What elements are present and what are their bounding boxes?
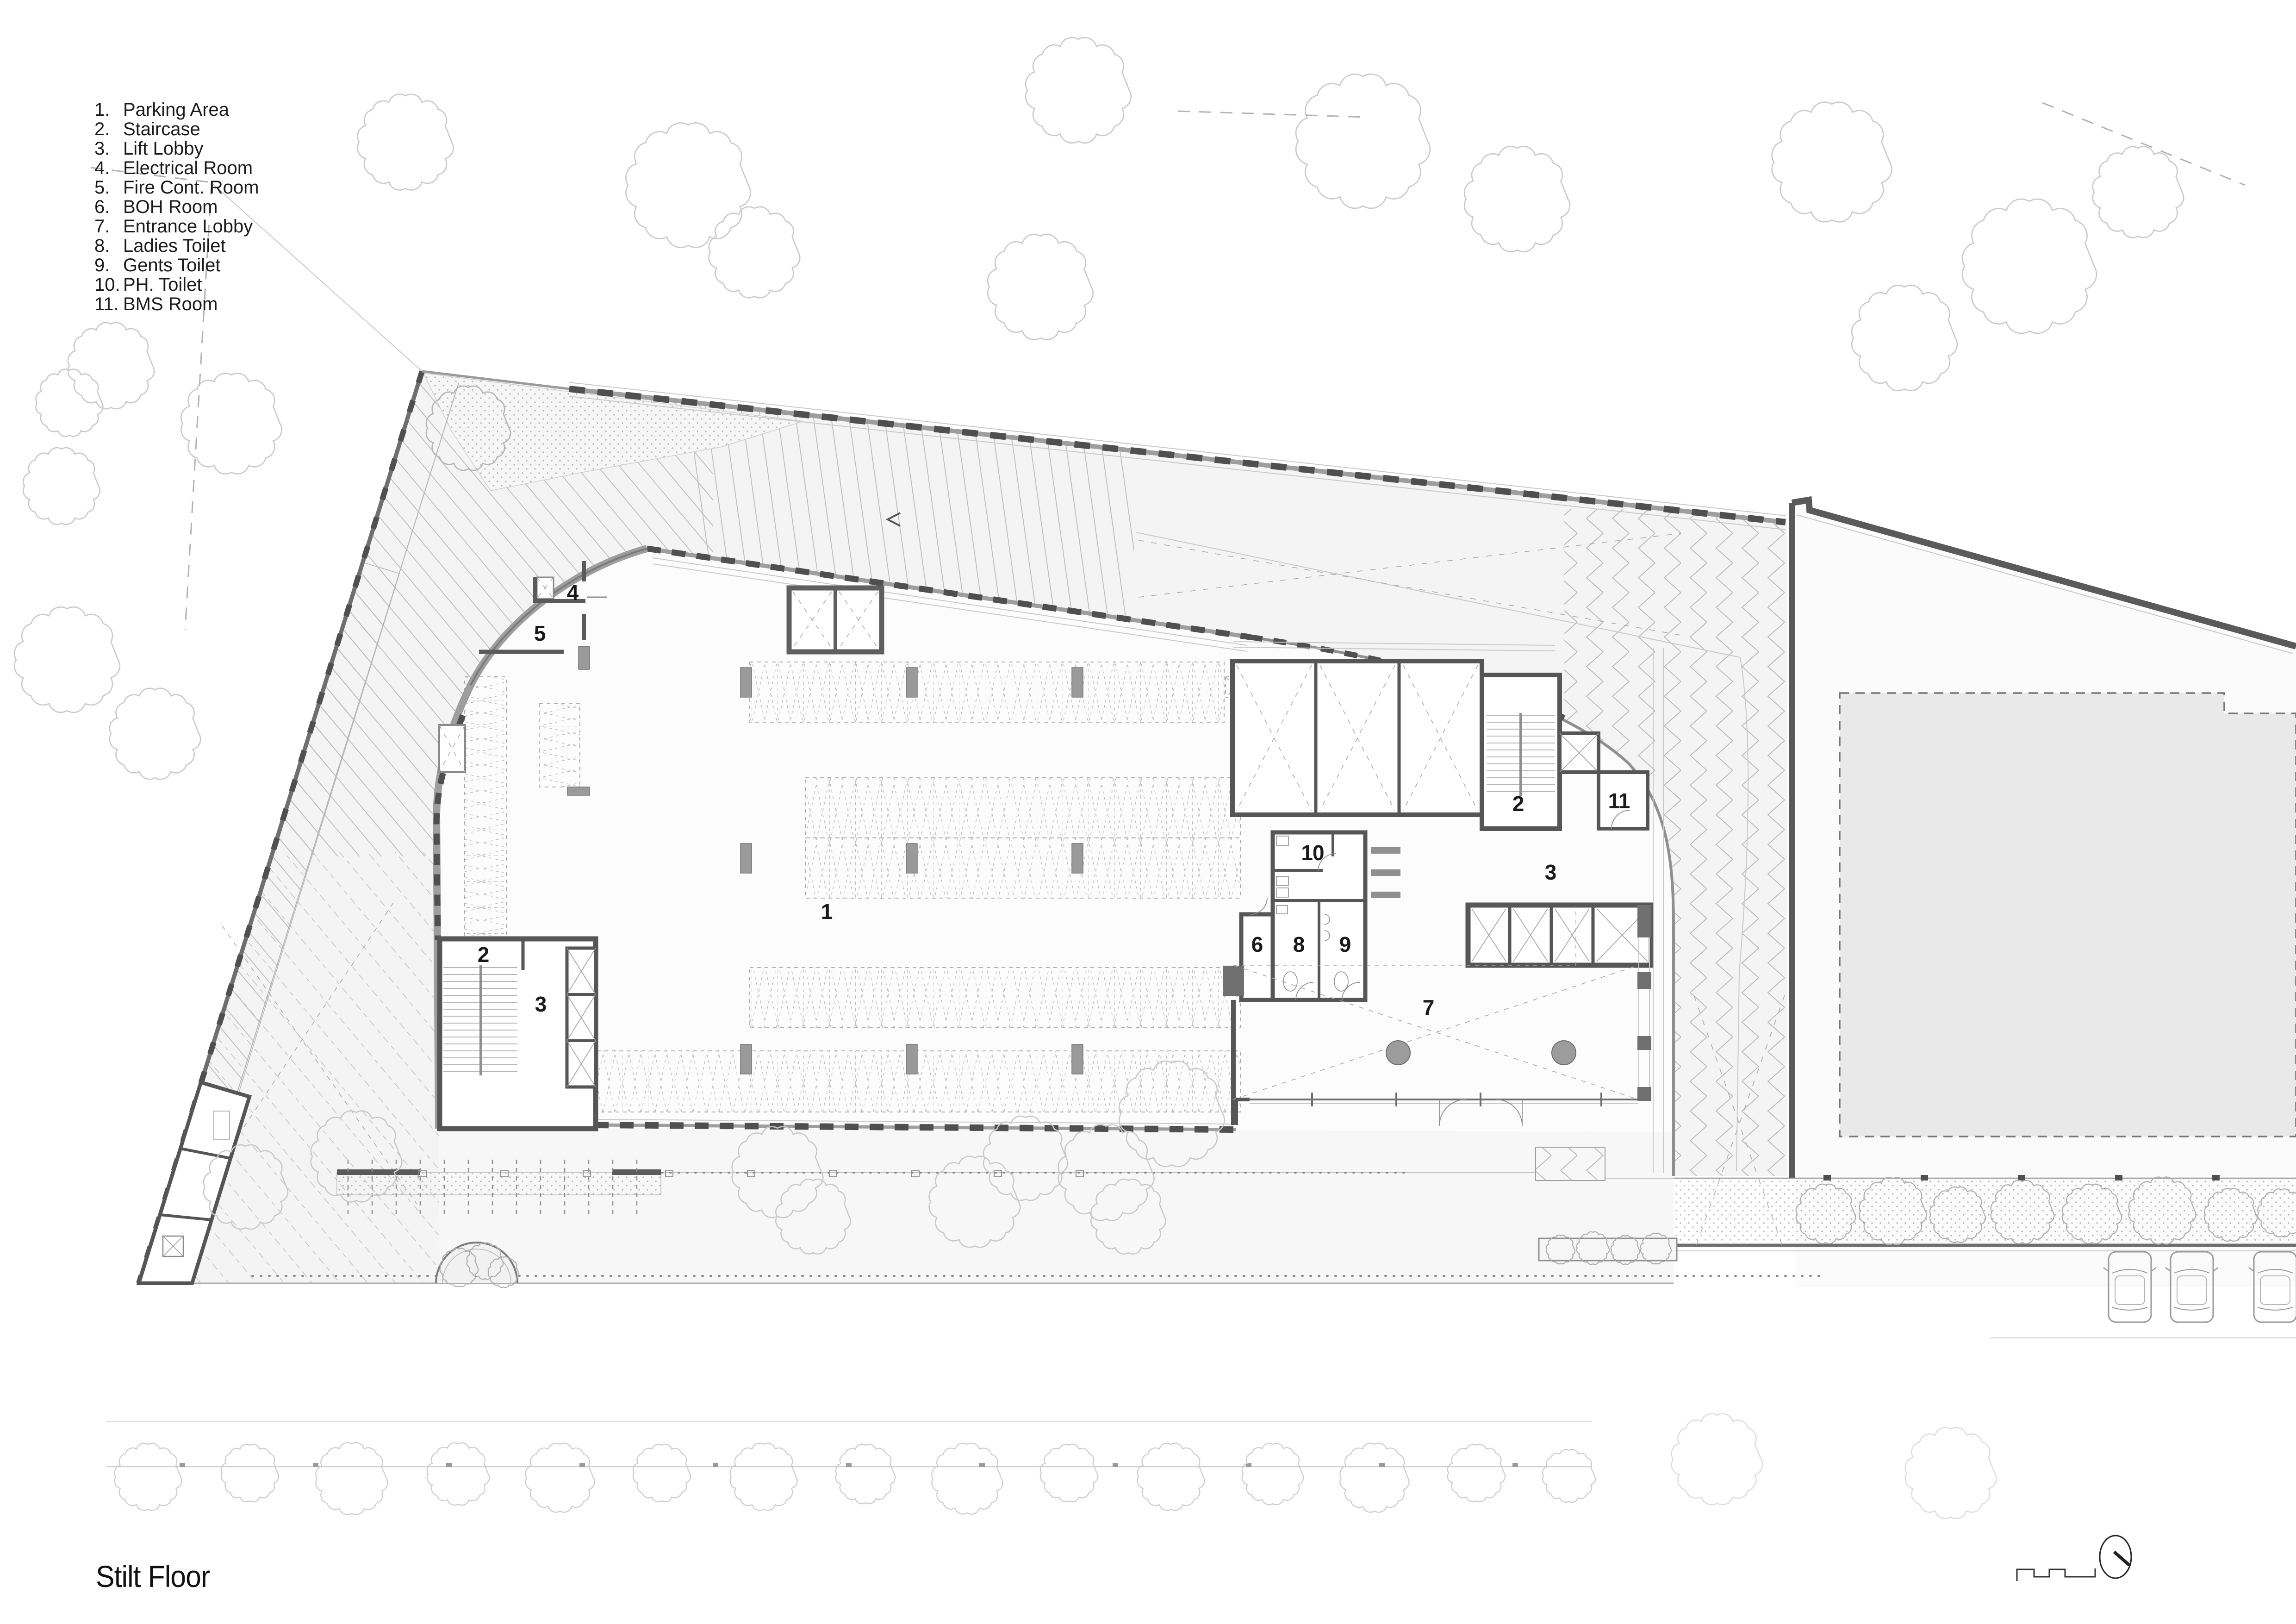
legend-item-label: Gents Toilet xyxy=(123,255,221,275)
lift-shafts-left xyxy=(567,948,596,1087)
neighbor-pavement xyxy=(1674,1175,2296,1251)
legend-item-number: 7. xyxy=(94,216,110,237)
stall-row-bottom xyxy=(597,1051,1240,1112)
sheet-title-group: Stilt Floor xyxy=(96,1560,210,1594)
sheet-title: Stilt Floor xyxy=(96,1560,210,1594)
entrance-mat xyxy=(1536,1147,1605,1181)
stall-row-middle-upper xyxy=(805,778,1240,838)
legend-item-label: Parking Area xyxy=(123,100,230,120)
stall-row-middle-lower xyxy=(805,838,1240,898)
legend-item-label: Staircase xyxy=(123,119,200,139)
legend-item-number: 2. xyxy=(94,119,110,139)
plan-label-electrical-room: 4 xyxy=(567,581,579,605)
neighbor-building xyxy=(1840,693,2296,1137)
plan-label-bms-room: 11 xyxy=(1608,789,1630,813)
plan-label-fire-control-room: 5 xyxy=(534,621,546,645)
legend-item-label: Entrance Lobby xyxy=(123,216,253,237)
legend-item-label: PH. Toilet xyxy=(123,275,202,295)
plan-label-lift-lobby-left: 3 xyxy=(535,992,547,1016)
left-core xyxy=(440,939,596,1129)
legend-item-number: 9. xyxy=(94,255,110,275)
legend-item-label: Fire Cont. Room xyxy=(123,177,259,198)
legend-item-label: BMS Room xyxy=(123,294,218,314)
drawing-sheet: 1.Parking Area 2.Staircase 3.Lift Lobby … xyxy=(0,0,2296,1624)
plan-label-staircase-right: 2 xyxy=(1512,792,1524,816)
plan-label-entrance-lobby: 7 xyxy=(1423,995,1434,1019)
plan-label-ph-toilet: 10 xyxy=(1301,841,1324,865)
legend-item-number: 4. xyxy=(94,158,110,178)
legend-item-number: 3. xyxy=(94,138,110,159)
legend-item-label: BOH Room xyxy=(123,197,218,217)
lift-shafts-top xyxy=(789,588,882,652)
plan-label-ladies-toilet: 8 xyxy=(1293,932,1305,956)
stall-strip-left-1 xyxy=(465,677,506,961)
legend-item: 10.PH. Toilet xyxy=(94,275,202,295)
stall-row-top xyxy=(750,662,1224,722)
legend-item-number: 11. xyxy=(94,294,119,314)
shaft-box xyxy=(1223,966,1244,996)
plan-label-lift-lobby-right: 3 xyxy=(1545,860,1556,884)
legend-item-label: Ladies Toilet xyxy=(123,236,226,256)
legend-item-label: Electrical Room xyxy=(123,158,253,178)
shaft-on-curve xyxy=(439,725,465,772)
stilt-floor-plan: 1.Parking Area 2.Staircase 3.Lift Lobby … xyxy=(0,0,2296,1624)
plan-label-staircase-left: 2 xyxy=(478,943,489,967)
plan-label-boh-room: 6 xyxy=(1251,932,1263,956)
legend-item-label: Lift Lobby xyxy=(123,138,203,159)
legend-item-number: 1. xyxy=(94,100,110,120)
legend-item-number: 5. xyxy=(94,177,110,198)
lift-shaft-small xyxy=(1560,733,1599,772)
legend-item-number: 8. xyxy=(94,236,110,256)
legend-item-number: 6. xyxy=(94,197,110,217)
legend-item: 11.BMS Room xyxy=(94,294,218,314)
stall-row-third xyxy=(750,968,1240,1028)
legend-item-number: 10. xyxy=(94,275,120,295)
plan-label-gents-toilet: 9 xyxy=(1339,932,1351,956)
plan-label-parking: 1 xyxy=(821,899,833,924)
stall-strip-left-2 xyxy=(539,704,580,787)
lift-bank xyxy=(1468,905,1651,965)
